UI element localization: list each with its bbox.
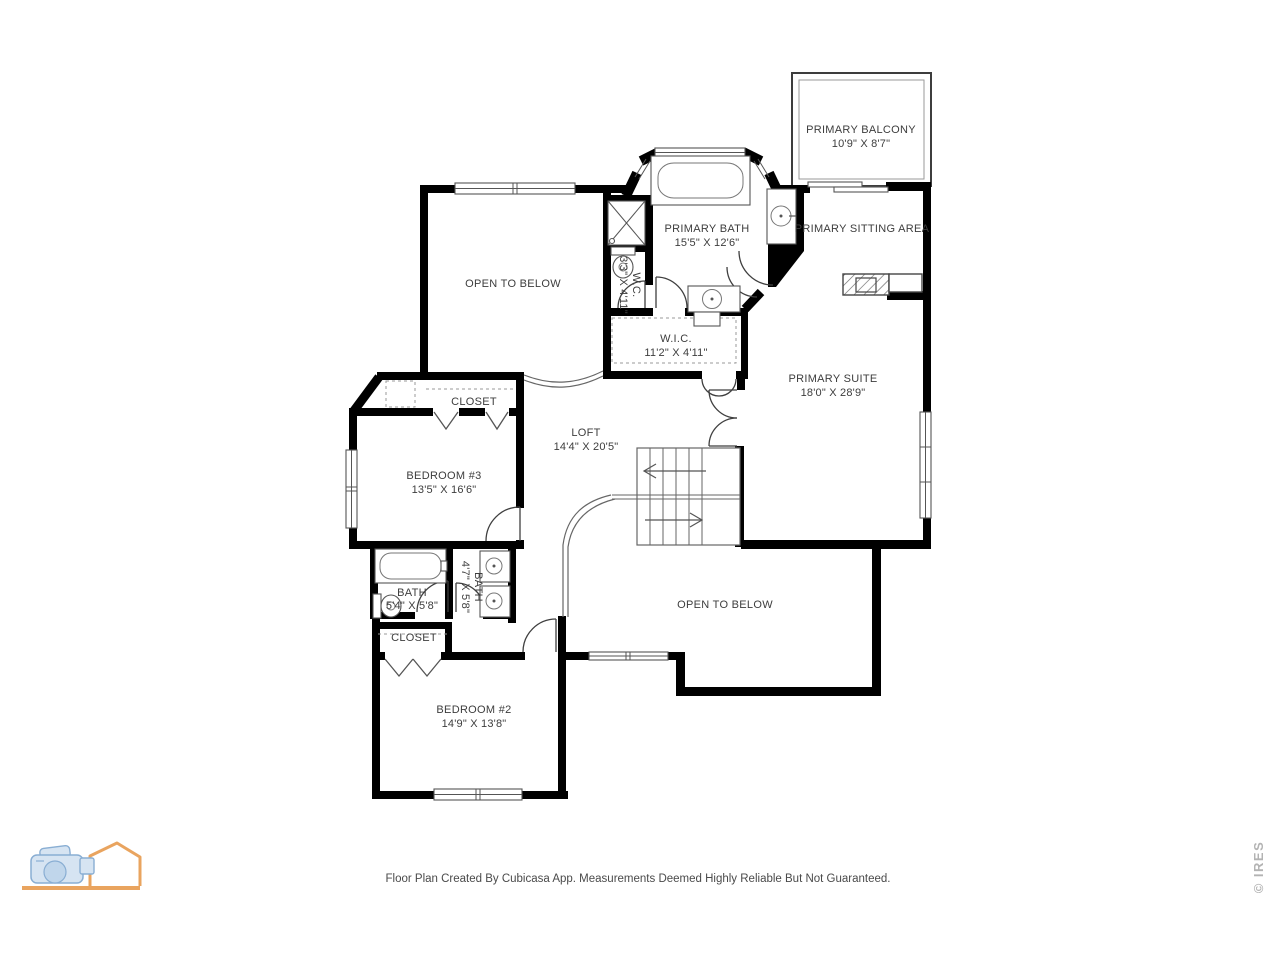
- dims-bath-hall: 5'4" X 5'8": [386, 600, 438, 612]
- label-closet-bedroom3: CLOSET: [451, 396, 497, 408]
- loft-railing: [524, 371, 615, 617]
- room-labels: PRIMARY BALCONY 10'9" X 8'7" PRIMARY SIT…: [386, 124, 930, 730]
- house-icon: [90, 843, 140, 886]
- dims-bedroom3: 13'5" X 16'6": [412, 484, 477, 496]
- label-wic: W.I.C.: [660, 333, 692, 345]
- label-bedroom2: BEDROOM #2: [436, 704, 511, 716]
- label-bath-inner: BATH: [472, 572, 484, 602]
- bathtub-hall-icon: [375, 549, 447, 583]
- door-bedroom2: [523, 619, 556, 652]
- window-primary-suite: [920, 412, 931, 518]
- label-wc: W.C.: [630, 272, 642, 297]
- dims-loft: 14'4" X 20'5": [554, 441, 619, 453]
- label-open-to-below-lower: OPEN TO BELOW: [677, 599, 773, 611]
- dims-primary-bath: 15'5" X 12'6": [675, 237, 740, 249]
- label-loft: LOFT: [571, 427, 600, 439]
- ires-watermark: © IRES: [1251, 841, 1266, 894]
- sliding-door-balcony: [808, 182, 888, 192]
- footer-disclaimer: Floor Plan Created By Cubicasa App. Meas…: [386, 873, 891, 885]
- label-primary-sitting-area: PRIMARY SITTING AREA: [795, 223, 930, 235]
- label-primary-bath: PRIMARY BATH: [665, 223, 750, 235]
- label-closet-bedroom2: CLOSET: [391, 632, 437, 644]
- bathtub-primary-icon: [651, 156, 750, 205]
- dims-wic: 11'2" X 4'11": [644, 347, 707, 359]
- ires-logo: [22, 843, 140, 888]
- label-primary-suite: PRIMARY SUITE: [788, 373, 877, 385]
- double-door-wic: [702, 379, 736, 396]
- double-door-primary-suite: [709, 390, 737, 446]
- door-primary-bath: [656, 277, 687, 308]
- camera-icon: [31, 845, 94, 883]
- window-bedroom2: [434, 789, 522, 800]
- label-primary-balcony: PRIMARY BALCONY: [806, 124, 916, 136]
- dims-primary-suite: 18'0" X 28'9": [801, 387, 866, 399]
- label-open-to-below-upper: OPEN TO BELOW: [465, 278, 561, 290]
- fireplace-icon: [843, 274, 922, 295]
- dims-wc: 3'3" X 4'11": [617, 256, 629, 314]
- label-bedroom3: BEDROOM #3: [406, 470, 481, 482]
- label-bath-hall: BATH: [397, 587, 427, 599]
- window-open-below-top: [455, 183, 575, 194]
- sink-primary-bath-icon: [688, 286, 740, 312]
- door-bedroom3: [486, 507, 520, 541]
- sink-suite-vanity-icon: [767, 189, 796, 244]
- shower-icon: [608, 201, 645, 245]
- dims-bedroom2: 14'9" X 13'8": [442, 718, 507, 730]
- window-bedroom3: [346, 450, 357, 528]
- window-half-wall: [589, 652, 668, 660]
- dims-bath-inner: 4'7" X 5'8": [459, 561, 471, 613]
- floor-plan-page: PRIMARY BALCONY 10'9" X 8'7" PRIMARY SIT…: [0, 0, 1280, 960]
- floor-plan-svg: PRIMARY BALCONY 10'9" X 8'7" PRIMARY SIT…: [0, 0, 1280, 960]
- dims-primary-balcony: 10'9" X 8'7": [832, 138, 890, 150]
- stairs-icon: [612, 448, 740, 545]
